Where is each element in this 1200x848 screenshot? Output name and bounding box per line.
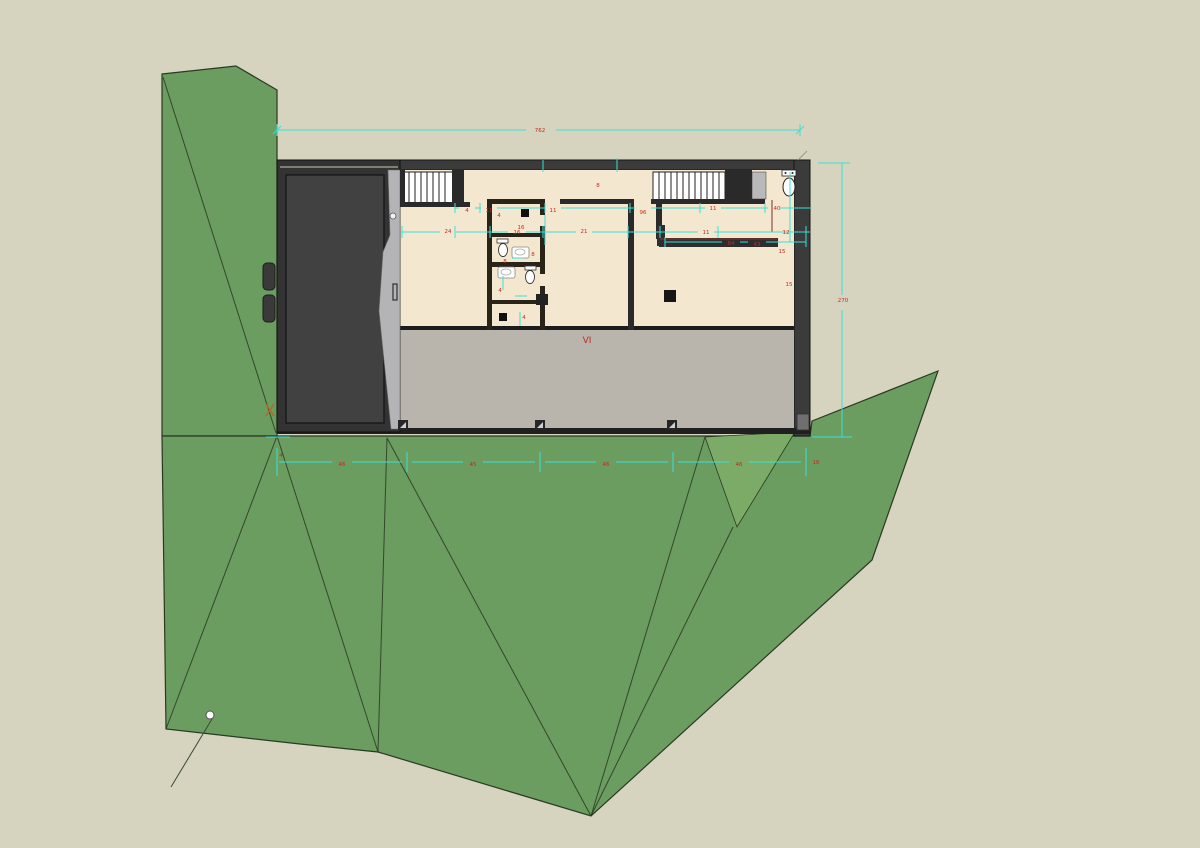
dimension-label: 46 [603, 462, 610, 468]
toilet[interactable] [499, 244, 508, 257]
drawing-viewport[interactable]: VI 7622702416211184434111196840151512114… [0, 0, 1200, 848]
endpoint-dot[interactable] [206, 711, 214, 719]
wall-partition [560, 199, 634, 204]
dimension-label: 4 [279, 453, 283, 459]
stair-left-jamb [400, 170, 405, 204]
dimension-label: 11 [486, 208, 493, 214]
floor-drain [499, 313, 507, 321]
dimension-label: 11 [710, 206, 717, 212]
dimension-label: 4 [498, 288, 502, 294]
dimension-label: 4 [497, 213, 501, 219]
stair-newel [452, 169, 464, 204]
dimension-label: 11 [703, 230, 710, 236]
toilet[interactable] [526, 271, 535, 284]
dimension-label: 8 [503, 259, 507, 265]
column[interactable] [664, 290, 676, 302]
stair-landing-dark [725, 170, 752, 200]
wall-mid-horizontal [400, 326, 794, 330]
toilet-top-right[interactable] [782, 170, 796, 196]
wall-under-stair [651, 199, 765, 204]
wall-under-stair [400, 202, 470, 207]
dimension-label: 4 [522, 315, 526, 321]
dimension-label: 21 [581, 229, 588, 235]
dimension-label: 46 [339, 462, 346, 468]
door-knob [390, 213, 396, 219]
dimension-label: 46 [736, 462, 743, 468]
dimension-label: 16 [518, 225, 525, 231]
dimension-label: 4 [465, 208, 469, 214]
dimension-label: 8 [596, 183, 600, 189]
dimension-label: 15 [779, 249, 786, 255]
wall-block [536, 294, 548, 305]
stair-left[interactable] [400, 169, 470, 207]
dimension-label: 11 [550, 208, 557, 214]
stair-landing-gray [752, 172, 766, 199]
dimension-label: 270 [838, 298, 849, 304]
dimension-label: 8 [531, 252, 535, 258]
dimension-label: 15 [786, 282, 793, 288]
floor-drain [521, 209, 529, 217]
dimension-label: 40 [774, 206, 781, 212]
dimension-label: 43 [754, 242, 761, 248]
wall-right[interactable] [794, 160, 810, 436]
section-mark-label: VI [583, 336, 592, 346]
building-plan[interactable] [263, 151, 810, 436]
toilet-tank [497, 239, 508, 243]
toilet-tank [525, 266, 536, 270]
dimension-label: 45 [470, 462, 477, 468]
slab-terrace[interactable] [400, 329, 794, 430]
dimension-label: 84 [728, 241, 735, 247]
dimension-label: 96 [640, 210, 647, 216]
garage[interactable] [277, 160, 400, 432]
stair-right[interactable] [651, 170, 766, 204]
dimension-label: 24 [445, 229, 452, 235]
dimension-label: 762 [535, 128, 546, 134]
wall-partition-vertical [628, 202, 634, 330]
dimension-label: 16 [813, 460, 820, 466]
garage-inner [286, 175, 384, 423]
dimension-label: 12 [783, 230, 790, 236]
